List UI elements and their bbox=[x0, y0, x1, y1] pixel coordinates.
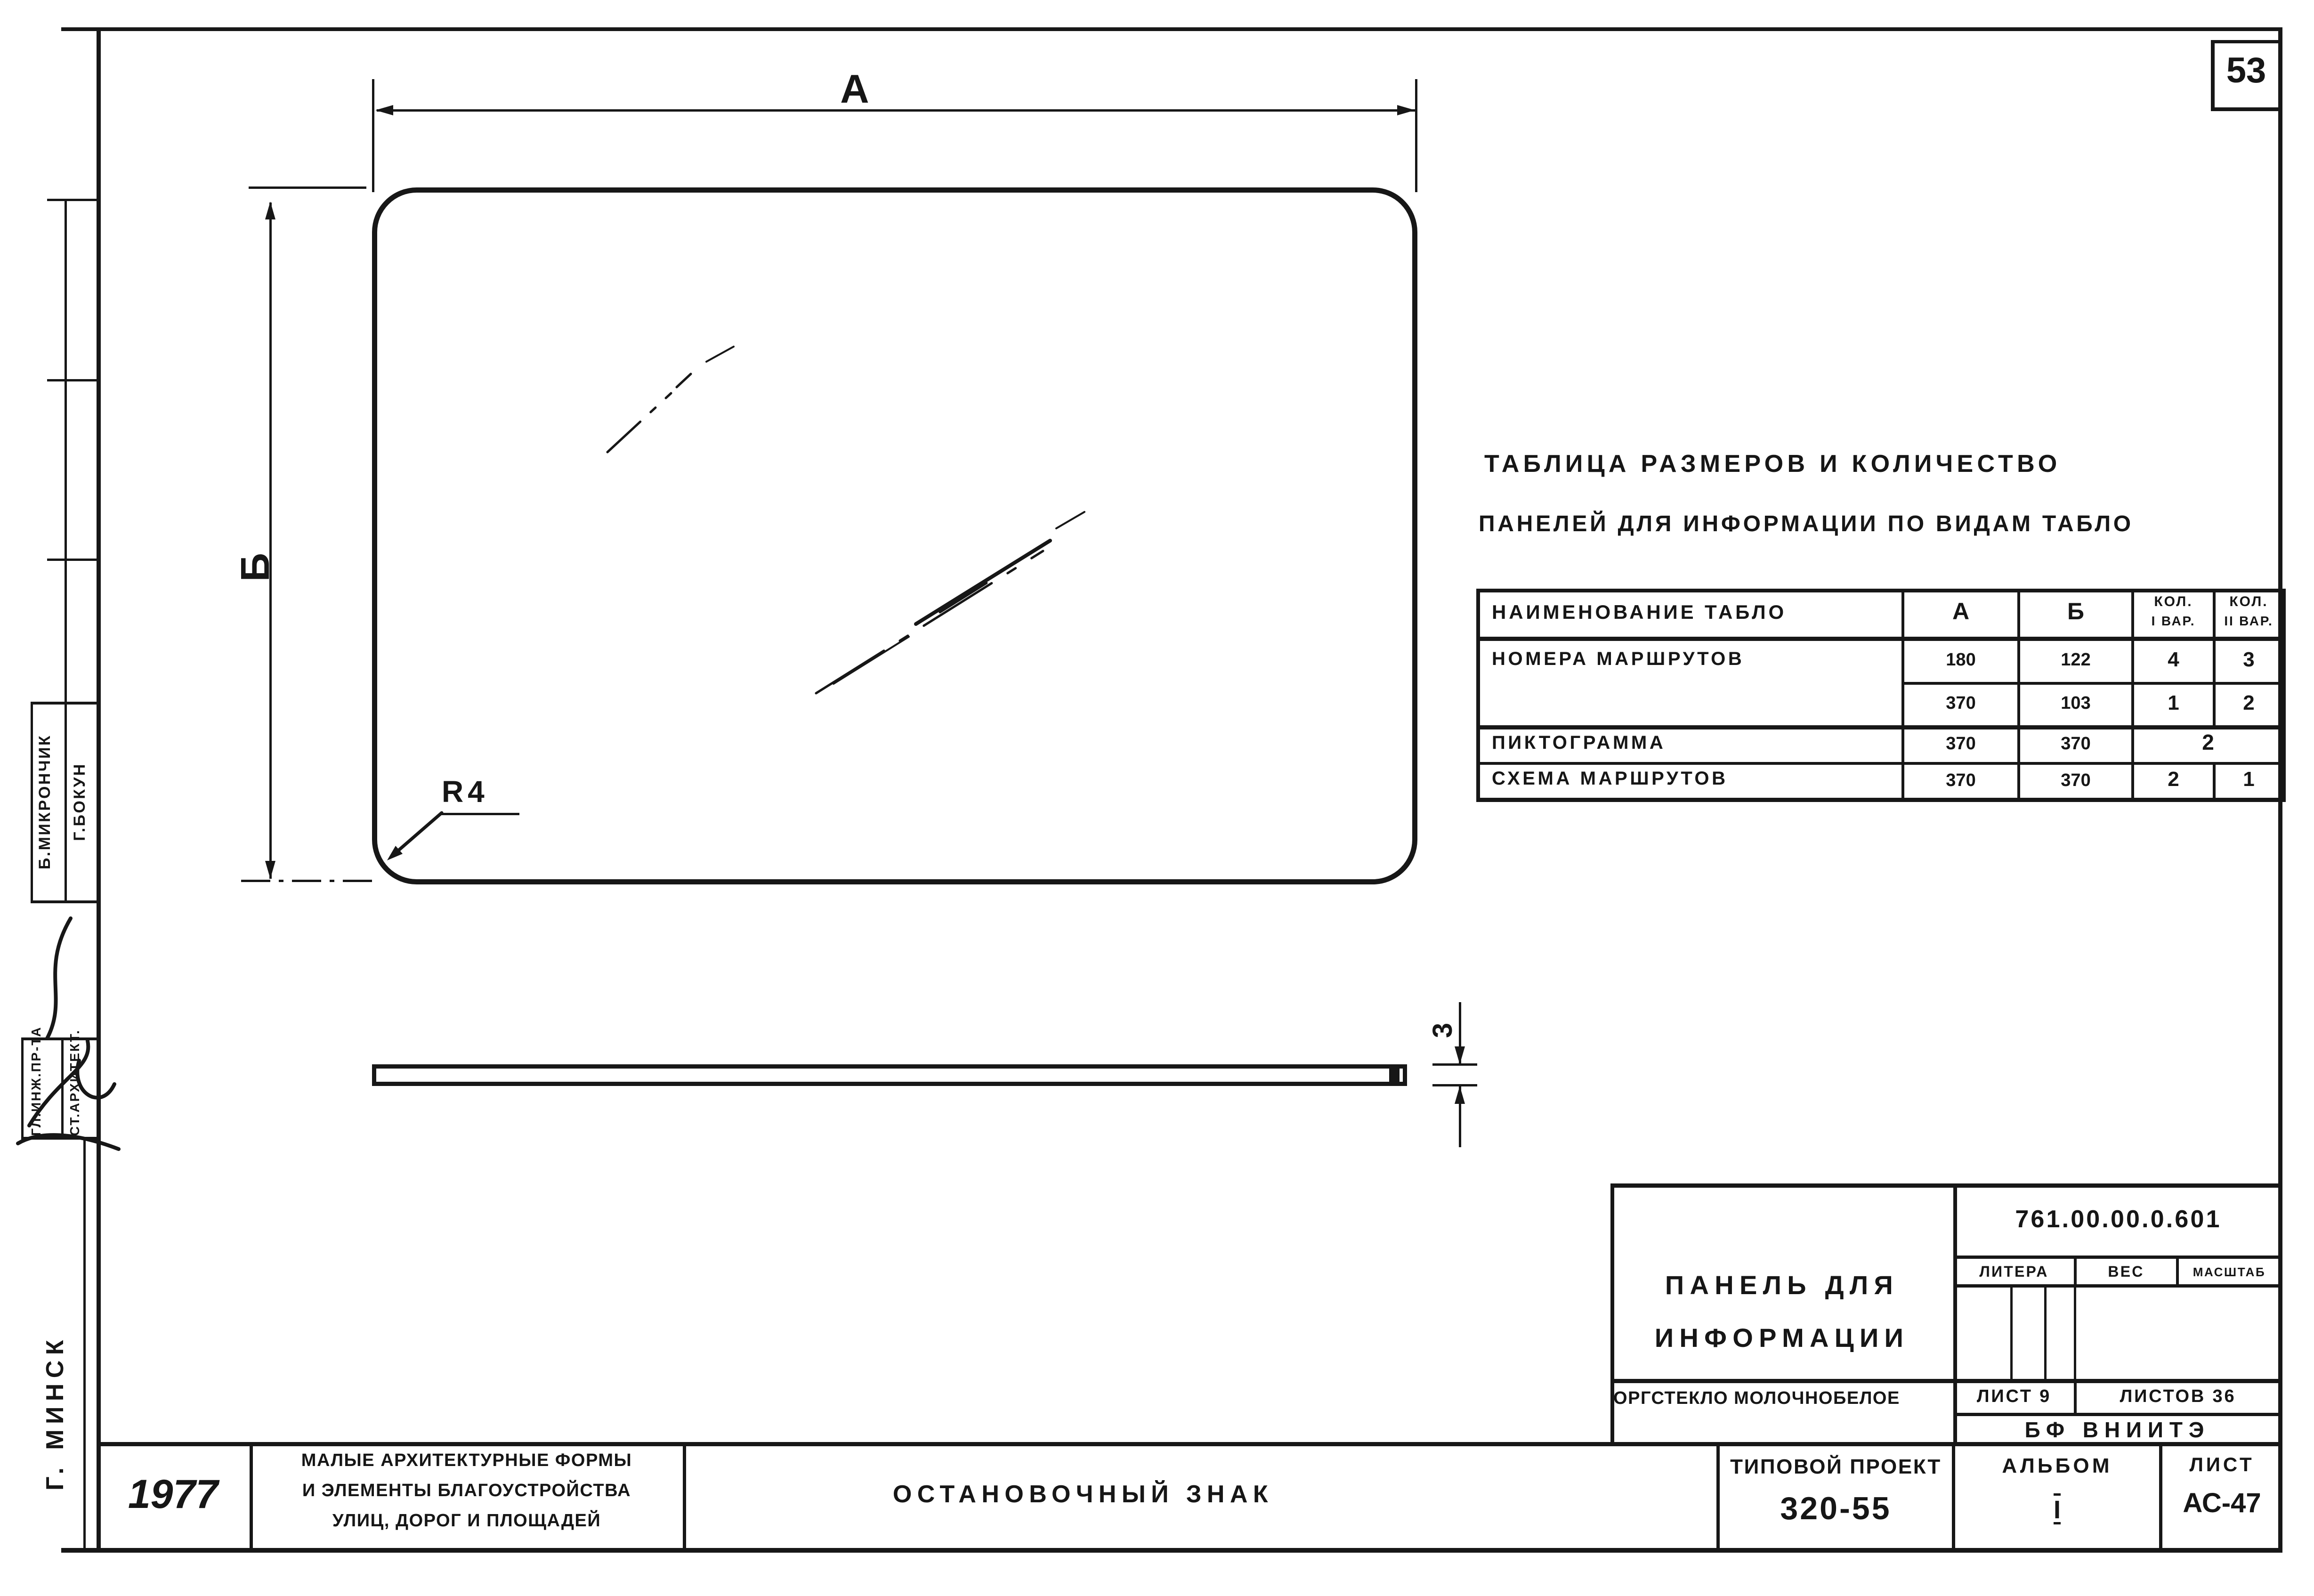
table-cell: 370 bbox=[1904, 694, 2017, 713]
footer-year: 1977 bbox=[97, 1473, 250, 1515]
titleblock-org: БФ ВНИИТЭ bbox=[1953, 1418, 2282, 1441]
table-header-q1-line1: Кол. bbox=[2134, 594, 2213, 609]
footer-series-line3: улиц, дорог и площадей bbox=[252, 1512, 681, 1531]
titleblock-sheet: Лист 9 bbox=[1955, 1387, 2073, 1406]
drawing-sheet: 53 Б.Микрончик Г.Бокун Гл.инж.пр-та Ст.а… bbox=[0, 0, 2314, 1596]
table-header-a: А bbox=[1904, 599, 2017, 624]
table-header-q2-line1: Кол. bbox=[2216, 594, 2282, 609]
titleblock-title-line1: Панель для bbox=[1614, 1272, 1950, 1299]
footer-sheet-number: АС-47 bbox=[2162, 1489, 2282, 1518]
glare-stroke bbox=[833, 637, 909, 684]
table-bottom bbox=[1476, 798, 2286, 802]
glare-stroke bbox=[1056, 512, 1084, 528]
table-header-q1-line2: I вар. bbox=[2134, 614, 2213, 628]
table-top bbox=[1476, 589, 2286, 592]
table-row-name: Пиктограмма bbox=[1492, 733, 1666, 753]
glare-stroke bbox=[607, 393, 671, 452]
titleblock-header-bottom bbox=[1953, 1284, 2282, 1288]
glare-stroke bbox=[706, 347, 734, 362]
table-cell-merged: 2 bbox=[2134, 731, 2282, 753]
titleblock-scale-label: Масштаб bbox=[2178, 1266, 2281, 1279]
table-cell: 370 bbox=[2020, 735, 2131, 753]
table-cell: 2 bbox=[2134, 769, 2213, 790]
table-row-name: Номера маршрутов bbox=[1492, 649, 1744, 669]
footer-divider bbox=[1952, 1442, 1955, 1552]
table-cell: 3 bbox=[2216, 649, 2282, 671]
table-cell: 370 bbox=[1904, 771, 2017, 790]
titleblock-litera-subline bbox=[2010, 1288, 2013, 1379]
table-header-b: Б bbox=[2020, 599, 2131, 624]
footer-album-label: Альбом bbox=[1955, 1455, 2159, 1477]
footer-sheet-label: Лист bbox=[2162, 1454, 2282, 1475]
footer-series-line1: Малые архитектурные формы bbox=[252, 1451, 681, 1470]
footer-album-number-value: I bbox=[2049, 1496, 2065, 1524]
table-cell: 1 bbox=[2134, 692, 2213, 714]
table-cell: 1 bbox=[2216, 769, 2282, 790]
footer-drawing-title: Остановочный знак bbox=[683, 1482, 1483, 1507]
table-cell: 103 bbox=[2020, 694, 2131, 713]
table-cell: 4 bbox=[2134, 649, 2213, 671]
table-cell: 370 bbox=[2020, 771, 2131, 790]
footer-divider bbox=[1716, 1442, 1720, 1552]
size-table-title-line2: панелей для информации по видам табло bbox=[1479, 512, 2134, 536]
table-header-q2-line2: II вар. bbox=[2216, 614, 2282, 628]
titleblock-litera-subline bbox=[2044, 1288, 2047, 1379]
titleblock-top bbox=[1610, 1183, 2282, 1188]
glare-stroke bbox=[940, 583, 987, 612]
radius-leader-line bbox=[392, 813, 442, 856]
titleblock-doc-number: 761.00.00.0.601 bbox=[1957, 1207, 2280, 1232]
footer-project-label: Типовой проект bbox=[1720, 1456, 1952, 1478]
table-cell: 180 bbox=[1904, 651, 2017, 670]
table-cell: 122 bbox=[2020, 651, 2131, 670]
table-header-name: Наименование табло bbox=[1492, 602, 1787, 623]
glare-stroke bbox=[916, 541, 1050, 624]
titleblock-number-bottom bbox=[1953, 1256, 2282, 1259]
titleblock-litera-label: Литера bbox=[1955, 1264, 2073, 1280]
footer-divider bbox=[2159, 1442, 2162, 1552]
footer-series-line2: и элементы благоустройства bbox=[252, 1482, 681, 1500]
titleblock-litera-subline bbox=[2074, 1288, 2076, 1379]
signature bbox=[18, 918, 119, 1149]
table-cell: 2 bbox=[2216, 692, 2282, 714]
titleblock-material-top bbox=[1610, 1379, 2282, 1383]
glare-stroke bbox=[677, 374, 691, 387]
table-row-name: Схема маршрутов bbox=[1492, 769, 1728, 788]
titleblock-weight-label: Вес bbox=[2077, 1264, 2176, 1280]
titleblock-material: Оргстекло молочнобелое bbox=[1613, 1389, 1900, 1408]
table-row-divider bbox=[1476, 762, 2286, 765]
size-table-title-line1: Таблица размеров и количество bbox=[1484, 451, 2061, 477]
glare-stroke bbox=[816, 551, 1043, 693]
table-heavy-divider bbox=[1476, 725, 2286, 729]
table-left bbox=[1476, 589, 1480, 801]
table-header-bottom bbox=[1476, 637, 2286, 641]
footer-album-number: I bbox=[1955, 1497, 2159, 1523]
table-cell: 370 bbox=[1904, 735, 2017, 753]
titleblock-sheets: Листов 36 bbox=[2077, 1387, 2279, 1406]
footer-project-number: 320-55 bbox=[1720, 1492, 1952, 1525]
titleblock-sheet-row-bottom bbox=[1953, 1413, 2282, 1416]
table-row-divider bbox=[1901, 682, 2283, 685]
table-right bbox=[2282, 589, 2286, 801]
titleblock-title-line2: информации bbox=[1614, 1324, 1950, 1352]
